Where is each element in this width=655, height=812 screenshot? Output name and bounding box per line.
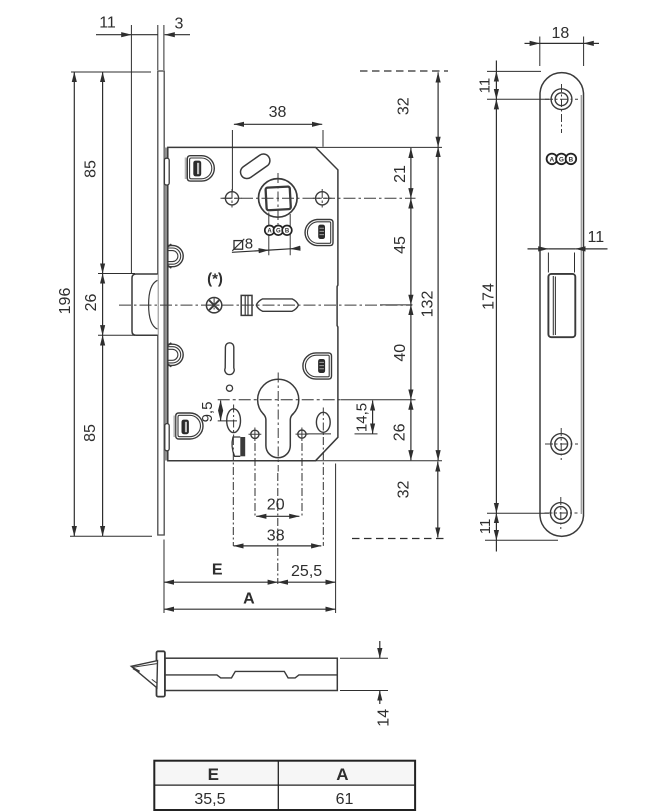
svg-text:21: 21 (392, 165, 409, 183)
svg-text:38: 38 (267, 528, 285, 545)
svg-text:174: 174 (481, 283, 498, 310)
svg-text:45: 45 (392, 236, 409, 254)
svg-text:8: 8 (245, 235, 253, 252)
svg-text:26: 26 (392, 423, 409, 441)
svg-text:3: 3 (174, 16, 183, 33)
svg-text:18: 18 (552, 25, 570, 42)
svg-text:(*): (*) (207, 271, 223, 288)
svg-text:26: 26 (83, 294, 100, 312)
svg-text:A: A (243, 591, 255, 608)
svg-text:B: B (569, 156, 574, 163)
svg-text:32: 32 (396, 481, 413, 499)
svg-text:G: G (559, 156, 564, 163)
svg-text:B: B (285, 229, 290, 235)
svg-text:85: 85 (82, 160, 99, 178)
svg-text:14,5: 14,5 (353, 403, 370, 432)
svg-text:11: 11 (587, 229, 604, 246)
svg-text:11: 11 (99, 15, 116, 32)
svg-text:20: 20 (267, 497, 285, 514)
svg-text:A: A (550, 156, 555, 163)
svg-text:35,5: 35,5 (194, 791, 225, 808)
svg-text:25,5: 25,5 (291, 563, 322, 580)
svg-text:32: 32 (395, 97, 412, 115)
svg-text:A: A (267, 229, 272, 235)
svg-text:G: G (276, 229, 281, 235)
svg-text:40: 40 (392, 344, 409, 362)
svg-text:196: 196 (57, 288, 74, 315)
svg-text:85: 85 (82, 424, 99, 442)
svg-text:132: 132 (419, 291, 436, 318)
svg-text:14: 14 (375, 709, 392, 727)
svg-text:38: 38 (269, 104, 287, 121)
svg-text:E: E (208, 765, 219, 784)
svg-text:A: A (336, 765, 348, 784)
svg-text:11: 11 (477, 78, 494, 94)
svg-text:11: 11 (477, 519, 494, 535)
svg-text:61: 61 (336, 791, 354, 808)
svg-text:E: E (212, 562, 223, 579)
svg-text:9,5: 9,5 (199, 402, 216, 423)
